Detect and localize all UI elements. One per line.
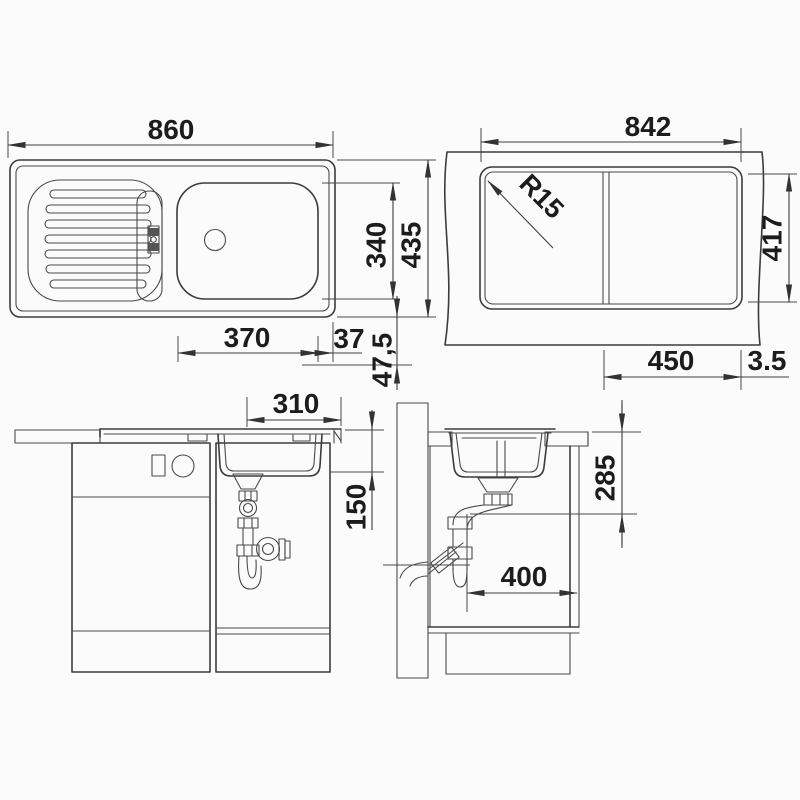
cabinet-front-view <box>15 429 341 672</box>
drain-hole <box>205 230 226 251</box>
countertop-side-left <box>428 432 452 446</box>
dim-overall-width-label: 860 <box>148 114 195 145</box>
dim-offset-450-label: 450 <box>648 345 695 376</box>
appliance-knob <box>172 455 194 477</box>
cabinet-right-unit <box>216 443 330 672</box>
sink-bowl <box>177 183 318 299</box>
dim-edge-gap-label: 37 <box>333 323 364 354</box>
cabinet-front-dimensions: 310 150 <box>247 388 384 530</box>
sink-inner-rim <box>16 166 329 311</box>
dim-bowl-depth-front-label: 150 <box>341 484 372 531</box>
countertop-front-section <box>15 430 100 443</box>
cabinet-side-body <box>428 432 588 674</box>
wall-section <box>397 403 428 678</box>
dim-outlet-height-label: 285 <box>590 455 621 502</box>
sink-top-view-dimensions: 860 340 435 370 37 47,5 <box>8 114 436 390</box>
appliance-button <box>152 455 165 476</box>
tap-hole-fitting <box>148 226 159 253</box>
cutout-plan-view: R15 <box>445 152 764 345</box>
dim-cutout-width-label: 842 <box>625 111 672 142</box>
dim-overall-depth-label: 435 <box>396 222 427 269</box>
cabinet-left-unit <box>72 443 210 672</box>
dim-rim-offset-label: 47,5 <box>367 333 398 388</box>
cabinet-side-view <box>383 403 588 678</box>
drainboard-ribs <box>45 190 151 288</box>
sink-front-profile <box>100 429 341 443</box>
bowl-side-section <box>445 429 555 477</box>
dim-bowl-width-front-label: 310 <box>273 388 320 419</box>
countertop-section <box>445 152 764 345</box>
countertop-side-right <box>545 432 588 446</box>
cutout-plan-dimensions: 842 417 450 3.5 <box>481 111 797 390</box>
bowl-front-section <box>218 434 322 476</box>
dim-depth-clearance-label: 400 <box>501 561 548 592</box>
dim-bowl-depth-label: 340 <box>361 222 392 269</box>
dim-edge-clearance-label: 3.5 <box>748 345 787 376</box>
drain-pipe-side <box>383 478 518 587</box>
plinth <box>446 633 570 674</box>
sink-top-view <box>10 160 335 317</box>
dim-bowl-width-label: 370 <box>224 322 271 353</box>
dim-cutout-depth-label: 417 <box>757 215 788 262</box>
technical-drawing-page: 860 340 435 370 37 47,5 R1 <box>0 0 800 800</box>
sink-dimension-drawing: 860 340 435 370 37 47,5 R1 <box>0 0 800 800</box>
siphon-trap-front <box>233 474 290 589</box>
